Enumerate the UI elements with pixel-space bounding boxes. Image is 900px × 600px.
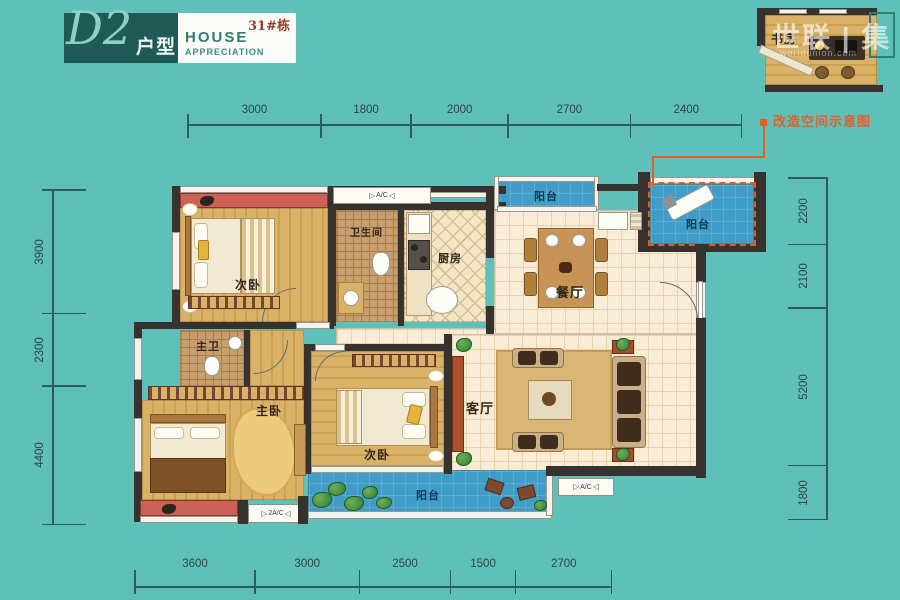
dim-segment: 2700: [508, 104, 630, 140]
watermark-url: worldunion.com: [780, 48, 857, 58]
wall: [546, 466, 698, 476]
dimension-line-right: 2200 2100 5200 1800: [788, 178, 844, 520]
dim-segment: 1800: [321, 104, 411, 140]
dim-segment: 2100: [788, 245, 844, 309]
dim-value: 4400: [34, 443, 46, 469]
room-label-master-bath: 主卫: [196, 338, 220, 354]
dim-value: 2000: [411, 104, 508, 116]
window: [140, 516, 238, 523]
basin: [426, 286, 458, 314]
wall: [298, 496, 308, 524]
bed-blanket: [336, 390, 362, 444]
chair: [841, 66, 855, 79]
burner: [420, 256, 427, 263]
ac-label: 2A/C: [268, 510, 284, 517]
nightstand: [428, 450, 444, 462]
bay-window-red: [140, 500, 238, 516]
sofa-cushion: [617, 418, 641, 442]
sofa-cushion: [617, 390, 641, 414]
window: [134, 418, 142, 472]
chair: [815, 66, 829, 79]
logo-model: D2: [66, 5, 132, 51]
dim-value: 1800: [798, 480, 810, 506]
dim-segment: 2200: [788, 178, 844, 245]
wall: [765, 85, 883, 92]
ac-unit-top: ▷A/C◁: [333, 187, 431, 204]
dim-value: 2100: [798, 264, 810, 290]
wall: [757, 8, 765, 46]
pillow: [402, 424, 426, 439]
room-label-bedroom-bottom: 次卧: [364, 446, 390, 463]
dim-value: 2400: [630, 104, 742, 116]
logo-appreciation-text: APPRECIATION: [185, 47, 264, 57]
room-label-balcony-top: 阳台: [534, 188, 558, 204]
renovation-caption: 改造空间示意图: [773, 111, 871, 130]
building-number: 31#栋: [248, 15, 290, 34]
callout-line: [652, 156, 765, 158]
ac-glyph-right: ◁: [389, 192, 395, 200]
door-gap: [315, 344, 345, 351]
dim-segment: 3900: [30, 190, 90, 313]
cabinet: [630, 212, 642, 230]
window: [594, 176, 599, 210]
window: [819, 9, 847, 14]
ac-label: A/C: [376, 192, 388, 199]
pillow: [194, 262, 208, 288]
window: [430, 192, 488, 198]
wall: [244, 330, 250, 386]
window: [134, 338, 142, 380]
sofa-cushion: [518, 351, 536, 365]
callout-line: [652, 156, 654, 188]
dim-value: 2300: [34, 337, 46, 363]
tv-cabinet: [452, 356, 464, 452]
ac-label: A/C: [580, 484, 592, 491]
dim-segment: 1500: [451, 558, 516, 594]
toilet: [372, 252, 390, 276]
nightstand: [428, 370, 444, 382]
dim-value: 2200: [798, 198, 810, 224]
callout-line: [763, 126, 765, 157]
sofa-cushion: [540, 351, 558, 365]
room-label-kitchen: 厨房: [438, 250, 462, 266]
kitchen-sink: [408, 214, 430, 234]
door-gap: [296, 322, 330, 329]
wall: [486, 186, 494, 258]
logo-house-text: HOUSE: [185, 29, 248, 46]
centerpiece: [559, 262, 572, 273]
dim-value: 5200: [798, 374, 810, 400]
bed-blanket: [150, 458, 226, 493]
room-label-living: 客厅: [466, 398, 494, 417]
ac-glyph-left: ▷: [261, 510, 267, 518]
floorplan-page: D2 户型 31#栋 HOUSE APPRECIATION 3000 1800 …: [0, 0, 900, 600]
room-label-balcony-right: 阳台: [686, 216, 710, 232]
wardrobe: [188, 296, 280, 309]
ac-glyph-left: ▷: [573, 483, 579, 491]
pillow: [154, 427, 184, 439]
dimension-line-bottom: 3600 3000 2500 1500 2700: [135, 558, 612, 594]
sink: [343, 290, 359, 306]
stepping-stone: [500, 497, 514, 509]
plan-logo: D2 户型 31#栋 HOUSE APPRECIATION: [64, 13, 296, 63]
pillow: [190, 427, 220, 439]
wall: [398, 210, 404, 326]
dim-value: 2700: [508, 104, 630, 116]
dim-value: 1500: [451, 558, 516, 570]
wall: [444, 334, 452, 474]
window: [546, 472, 553, 516]
ac-unit-master: ▷2A/C◁: [248, 504, 304, 523]
chair: [524, 272, 537, 296]
bed-headboard: [430, 386, 438, 448]
dim-segment: 2400: [630, 104, 742, 140]
window: [494, 176, 499, 210]
dim-segment: 3000: [255, 558, 359, 594]
dim-value: 3600: [135, 558, 255, 570]
room-label-dining: 餐厅: [556, 282, 584, 301]
logo-dark-panel: D2 户型: [64, 13, 178, 63]
ac-glyph-right: ◁: [285, 510, 291, 518]
sofa-cushion: [617, 362, 641, 386]
dim-segment: 3000: [188, 104, 321, 140]
room-label-bedroom-top: 次卧: [235, 276, 261, 293]
logo-white-panel: 31#栋 HOUSE APPRECIATION: [178, 13, 296, 63]
bench: [294, 424, 306, 476]
sink: [228, 336, 242, 350]
sofa-cushion: [518, 435, 536, 449]
dim-value: 3000: [255, 558, 359, 570]
fridge: [598, 212, 628, 230]
callout-bullet: [760, 119, 767, 126]
wall: [238, 500, 248, 524]
dim-segment: 2700: [516, 558, 612, 594]
dim-value: 2700: [516, 558, 612, 570]
wardrobe: [352, 354, 436, 367]
sofa-cushion: [540, 435, 558, 449]
dim-segment: 5200: [788, 308, 844, 465]
window: [497, 206, 597, 212]
plate: [572, 234, 586, 247]
master-wardrobe: [148, 386, 304, 400]
dim-value: 2500: [359, 558, 450, 570]
pillow: [198, 240, 209, 260]
bed-headboard: [150, 414, 226, 423]
window: [308, 511, 552, 519]
dim-value: 3000: [188, 104, 321, 116]
entry-door-leaf: [698, 281, 703, 319]
dim-segment: 3600: [135, 558, 255, 594]
window: [311, 466, 444, 473]
window: [497, 176, 597, 182]
toilet: [204, 356, 220, 376]
chair: [524, 238, 537, 262]
window: [779, 9, 807, 14]
dim-value: 3900: [34, 239, 46, 265]
chair: [595, 272, 608, 296]
dim-segment: 2500: [359, 558, 450, 594]
logo-suffix: 户型: [136, 32, 176, 59]
ac-glyph-left: ▷: [369, 192, 375, 200]
plate: [545, 234, 559, 247]
wall: [696, 318, 706, 478]
ac-unit-living: ▷A/C◁: [558, 478, 614, 496]
dim-segment: 1800: [788, 466, 844, 520]
ac-glyph-right: ◁: [593, 483, 599, 491]
room-label-master-bedroom: 主卧: [256, 402, 282, 419]
dimension-line-top: 3000 1800 2000 2700 2400: [188, 104, 742, 140]
window: [172, 232, 180, 290]
burner: [411, 244, 418, 251]
room-label-bathroom: 卫生间: [350, 224, 383, 239]
dim-segment: 4400: [30, 386, 90, 525]
dim-value: 1800: [321, 104, 411, 116]
dim-segment: 2000: [411, 104, 508, 140]
wall: [696, 244, 706, 282]
nightstand: [182, 203, 198, 216]
dim-segment: 2300: [30, 313, 90, 386]
window: [180, 186, 328, 193]
dimension-line-left: 3900 2300 4400: [30, 190, 90, 525]
teapot: [542, 392, 556, 406]
chair: [595, 238, 608, 262]
room-label-balcony-bottom: 阳台: [416, 487, 440, 503]
wall: [486, 306, 494, 334]
